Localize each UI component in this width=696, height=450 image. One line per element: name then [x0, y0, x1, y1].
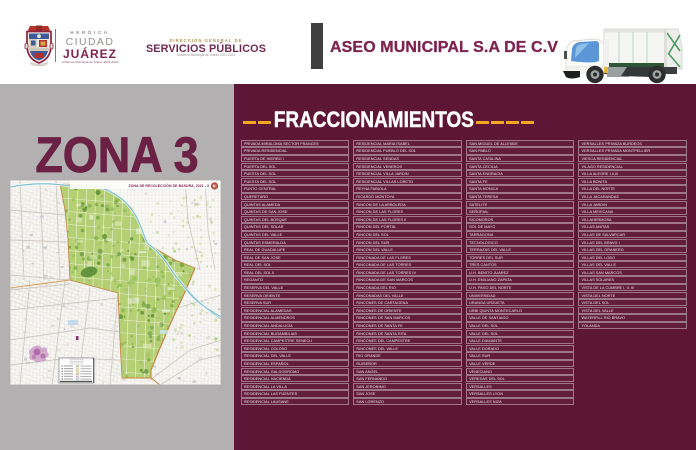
svg-text:ZONA DE RECOLECCIÓN DE BASURA,: ZONA DE RECOLECCIÓN DE BASURA, 2021 - 3 — [129, 183, 209, 188]
